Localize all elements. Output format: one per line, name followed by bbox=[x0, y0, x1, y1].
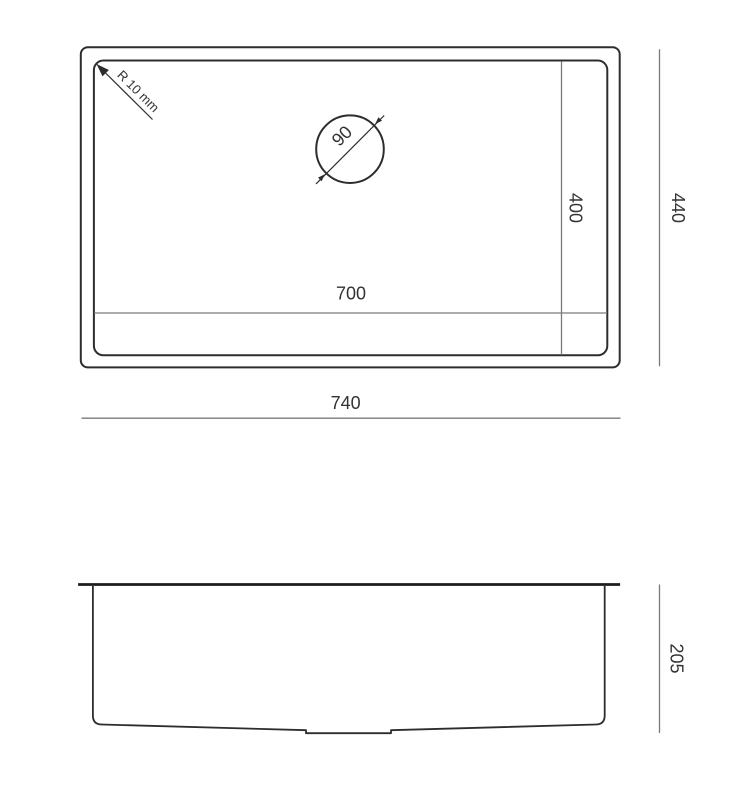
svg-text:440: 440 bbox=[668, 193, 688, 223]
svg-text:700: 700 bbox=[336, 284, 366, 304]
svg-text:740: 740 bbox=[331, 393, 361, 413]
svg-text:400: 400 bbox=[566, 193, 586, 223]
svg-text:205: 205 bbox=[667, 643, 687, 673]
